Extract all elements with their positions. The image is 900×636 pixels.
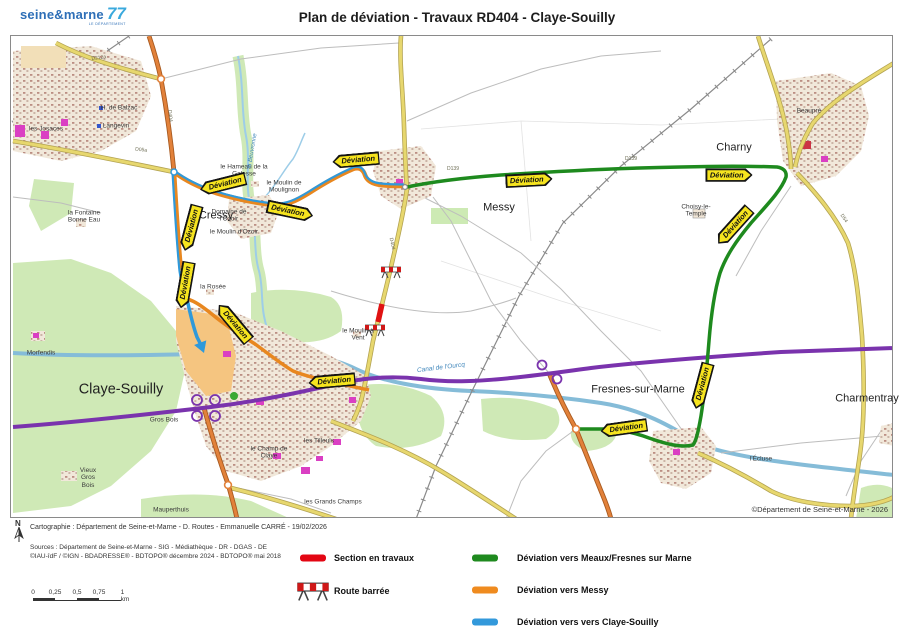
map-canvas: Cressy Messy Charny Claye-Souilly Fresne… (10, 35, 893, 518)
place-label-gros-bois: Gros Bois (150, 416, 179, 423)
place-label-beaupre: Beaupré (797, 107, 822, 114)
place-label-morfendis: Morfendis (27, 349, 56, 356)
works-section (378, 304, 382, 322)
scale-tick: 0,25 (49, 589, 62, 596)
scale-tick: 0,75 (93, 589, 106, 596)
legend-swatch-deviation-meaux (472, 555, 498, 562)
deviation-badge: Déviation (505, 172, 553, 188)
scale-tick: 0 (31, 589, 35, 596)
place-label-choisy-le-temple: Choisy-le-Temple (678, 204, 714, 219)
page-title: Plan de déviation - Travaux RD404 - Clay… (299, 10, 616, 25)
scale-segment (33, 598, 55, 601)
place-label-domaine-ozoir: Domaine de l'Ozoir (209, 209, 249, 224)
place-label-moulin-a-vent: le Moulin à Vent (341, 328, 375, 343)
town-label-charny: Charny (716, 142, 751, 155)
road-label-d404-north: D404 (166, 110, 173, 122)
sources-line-2: ©IAU-îdF / ©IGN - BDADRESSE® - BDTOPO® d… (30, 553, 281, 560)
north-arrow-icon (13, 527, 25, 543)
road-label-d404-south: D404 (387, 238, 395, 251)
school-icon (97, 124, 101, 128)
place-label-grands-champs: les Grands Champs (304, 498, 361, 505)
legend-label-deviation-messy: Déviation vers Messy (517, 585, 609, 595)
legend-label-deviation-meaux: Déviation vers Meaux/Fresnes sur Marne (517, 553, 692, 563)
forest-areas (13, 179, 892, 517)
logo-subtitle: LE DÉPARTEMENT (20, 23, 126, 27)
place-label-josaces: les Josaces (29, 125, 63, 132)
cartography-credit: Cartographie : Département de Seine-et-M… (30, 524, 327, 531)
legend-label-route-barree: Route barrée (334, 586, 390, 596)
scale-segment (77, 598, 99, 601)
place-label-rosee: la Rosée (200, 283, 226, 290)
place-label-champ-de-claye: le Champ de Claye (249, 446, 289, 461)
scale-tick: 0,5 (72, 589, 81, 596)
legend-swatch-travaux (300, 555, 326, 562)
town-label-fresnes-sur-marne: Fresnes-sur-Marne (591, 384, 685, 397)
legend-road-closed-icon (297, 580, 329, 602)
logo-name: seine&marne (20, 8, 104, 21)
map-copyright: ©Département de Seine-et-Marne - 2026 (752, 506, 888, 515)
legend-label-travaux: Section en travaux (334, 553, 414, 563)
town-label-charmentray: Charmentray (835, 393, 899, 406)
place-label-moulin-ozoir: le Moulin d'Ozoir (210, 228, 258, 235)
legend-label-deviation-claye: Déviation vers vers Claye-Souilly (517, 617, 659, 627)
place-label-fontaine-bonne-eau: la Fontaine Bonne Eau (62, 210, 106, 225)
department-logo: seine&marne 77 LE DÉPARTEMENT (20, 8, 126, 27)
place-label-tilleuls: les Tilleuls (304, 437, 334, 444)
place-label-balzac: H. de Balzac (101, 104, 138, 111)
legend-swatch-deviation-claye (472, 619, 498, 626)
map-geometry (11, 36, 892, 517)
deviation-badge: Déviation (705, 168, 752, 182)
place-label-langevin: Langevin (103, 122, 129, 129)
place-label-vieux-gros-bois: Vieux Gros Bois (74, 467, 102, 489)
deviation-plan-page: seine&marne 77 LE DÉPARTEMENT Plan de dé… (0, 0, 900, 636)
logo-77: 77 (107, 5, 126, 22)
scale-tick: 1 km (121, 589, 130, 603)
place-label-ecluse: l'Écluse (750, 455, 772, 462)
road-label-d139-east: D139 (625, 157, 637, 163)
road-label-d139-west: D139 (447, 167, 459, 173)
place-label-mauperthuis: Mauperthuis (153, 506, 189, 513)
place-label-moulin-moulignon: le Moulin de Moulignon (261, 180, 307, 195)
legend-swatch-deviation-messy (472, 587, 498, 594)
town-label-messy: Messy (483, 202, 515, 215)
sources-line-1: Sources : Département de Seine-et-Marne … (30, 544, 267, 551)
town-label-claye-souilly: Claye-Souilly (79, 382, 164, 399)
